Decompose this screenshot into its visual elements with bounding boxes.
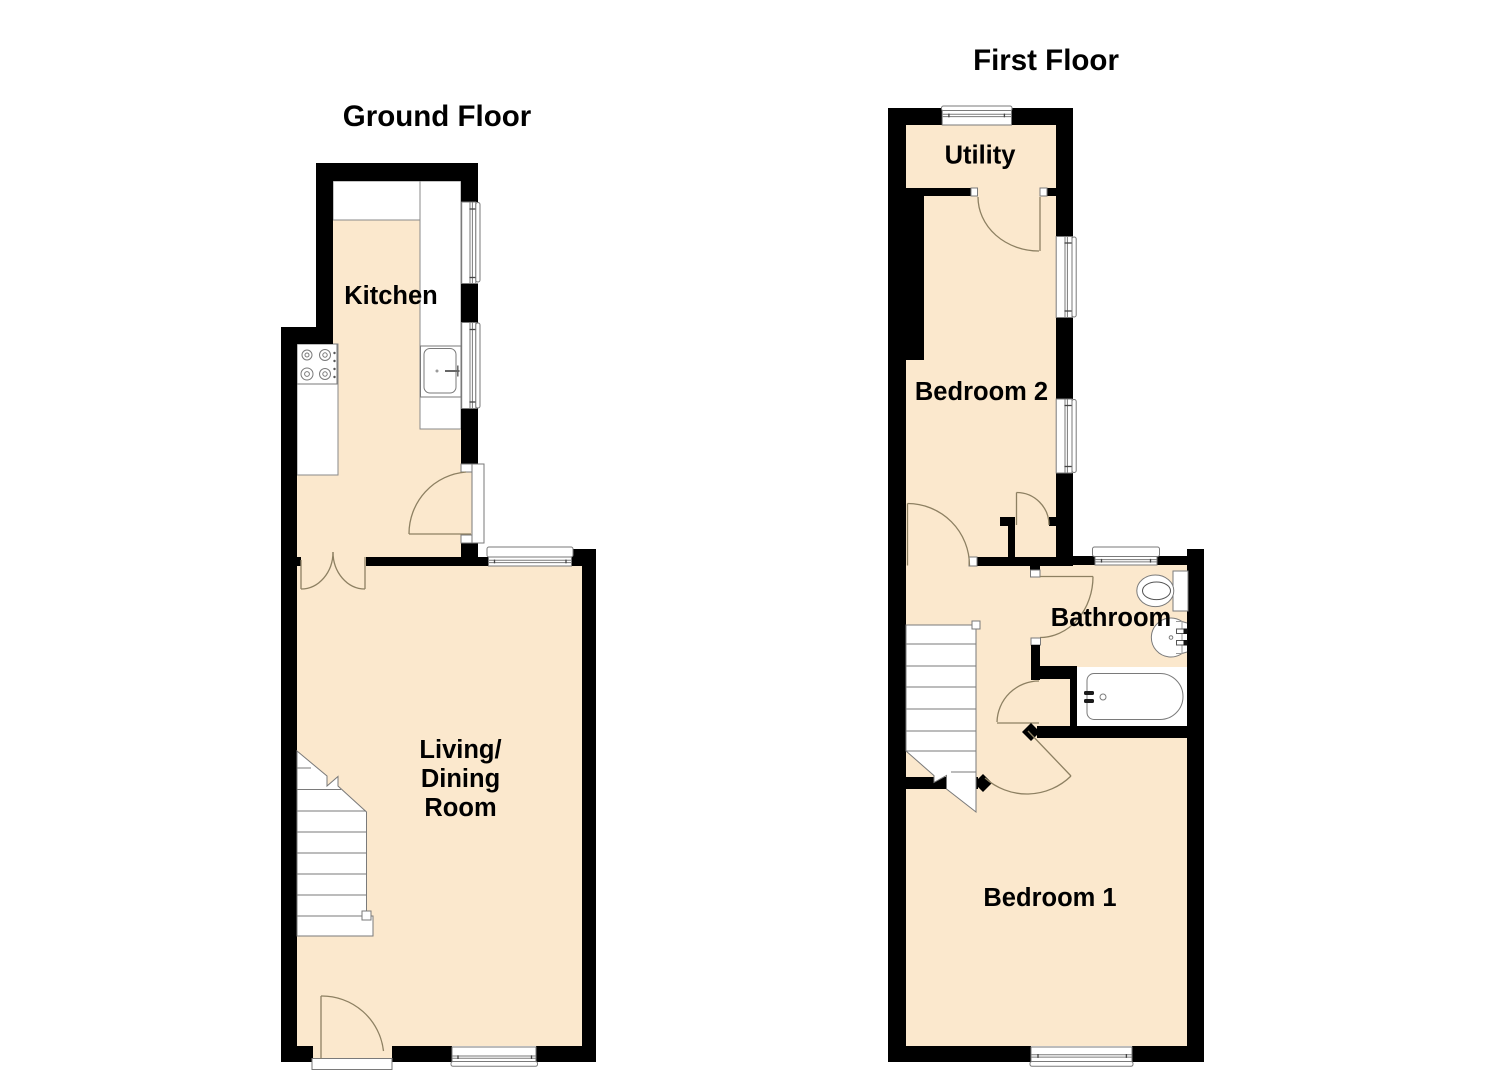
svg-text:Room: Room: [424, 794, 496, 822]
svg-text:Bathroom: Bathroom: [1051, 604, 1171, 632]
svg-text:Dining: Dining: [421, 765, 500, 793]
svg-text:Bedroom 1: Bedroom 1: [983, 884, 1116, 912]
svg-text:Utility: Utility: [945, 142, 1017, 170]
svg-text:Living/: Living/: [419, 736, 501, 764]
svg-text:Ground Floor: Ground Floor: [343, 100, 532, 133]
svg-text:Kitchen: Kitchen: [344, 282, 438, 310]
svg-text:First Floor: First Floor: [973, 44, 1119, 77]
svg-text:Bedroom 2: Bedroom 2: [915, 378, 1048, 406]
